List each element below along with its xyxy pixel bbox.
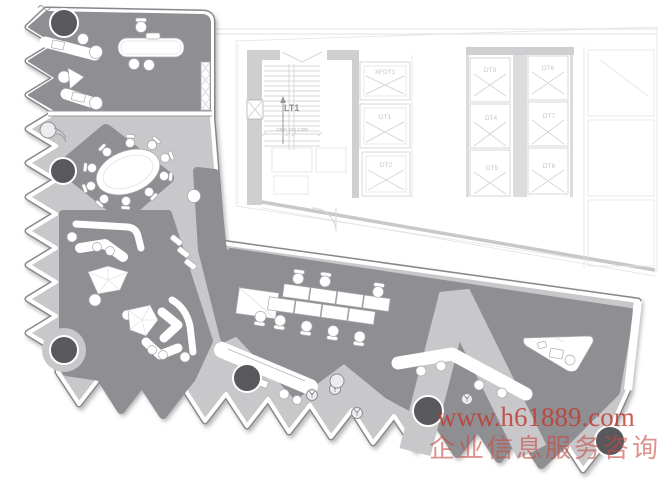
elevator-x	[474, 74, 506, 96]
elevator-bank-b: DT3 DT6 DT4 DT7 DT5 DT8	[466, 47, 574, 197]
elevator-shaft	[528, 56, 568, 100]
faint-diagonal	[600, 60, 648, 96]
cushion-icon	[159, 351, 168, 360]
chair	[121, 196, 131, 210]
faint-room	[588, 200, 654, 266]
elevator-label-dt4: DT4	[485, 115, 498, 122]
column	[50, 336, 78, 364]
stool	[188, 190, 201, 203]
plant-icon	[40, 122, 56, 138]
elevator-x	[368, 170, 404, 190]
core-room	[274, 176, 308, 194]
stool	[293, 396, 302, 405]
cushion-icon	[106, 247, 115, 256]
fitout-plan	[28, 6, 638, 471]
chair	[83, 163, 97, 173]
elevator-shaft	[360, 62, 410, 100]
elevator-x	[532, 72, 564, 94]
faint-room	[588, 120, 654, 196]
elevator-label-dt5: DT5	[486, 165, 499, 172]
stool	[279, 389, 289, 399]
stool	[89, 294, 101, 306]
faint-right-rooms	[584, 46, 654, 268]
elevator-label-dt3: DT3	[484, 67, 497, 74]
side-table	[67, 232, 77, 242]
core-room	[316, 148, 346, 172]
bank-wall	[352, 50, 359, 198]
restroom-basin	[565, 355, 575, 365]
dimension-text: 1300 100 1300	[276, 127, 308, 133]
elevator-x	[366, 76, 404, 94]
elevator-label-dt2: DT2	[380, 162, 393, 169]
stair-arrow-head	[280, 96, 286, 103]
stair-wall	[247, 50, 280, 60]
bank-wall	[570, 55, 573, 197]
chair	[159, 171, 173, 181]
door-leaves	[282, 52, 322, 62]
bank-wall	[466, 55, 469, 197]
elevator-x	[532, 120, 564, 144]
cushion-icon	[148, 346, 157, 355]
elevator-label-xfdt1: XFDT1	[375, 69, 396, 76]
elevator-shaft	[470, 58, 510, 102]
stool	[144, 60, 155, 71]
island-detail	[146, 33, 160, 39]
stair-lt1: LT1 1300 100 1300	[247, 50, 353, 205]
elevator-shaft	[470, 104, 510, 148]
stool	[90, 46, 103, 59]
elevator-bank-a: XFDT1 DT1 DT2	[352, 50, 412, 198]
bank-wall	[513, 55, 527, 197]
chair	[136, 18, 147, 33]
core-room	[272, 148, 312, 172]
plant-icon	[307, 390, 318, 401]
elevator-x	[474, 172, 506, 194]
elevator-label-dt1: DT1	[379, 114, 392, 121]
plant-icon	[352, 408, 363, 419]
elevator-label-dt6: DT6	[542, 65, 555, 72]
elevator-label-dt7: DT7	[543, 113, 556, 120]
stool	[416, 366, 426, 376]
elevator-x	[532, 170, 564, 192]
cushion-icon	[93, 243, 102, 252]
stool	[474, 380, 484, 390]
stair-wall	[327, 50, 353, 60]
elevator-label-dt8: DT8	[543, 163, 556, 170]
elevator-x	[366, 122, 404, 142]
watermark-url: www.h61889.com	[437, 402, 635, 432]
shelf-strip	[201, 62, 210, 110]
chair	[125, 134, 135, 148]
bank-wall	[466, 47, 574, 55]
watermark-caption: 企业信息服务咨询	[429, 434, 661, 463]
floor-plan-image: LT1 1300 100 1300 XFDT1 DT1 DT2	[0, 0, 662, 483]
column	[233, 364, 261, 392]
stair-wall	[247, 50, 262, 205]
stool	[78, 34, 89, 45]
stool	[497, 388, 507, 398]
faint-room	[588, 50, 654, 116]
floor-plan-canvas: LT1 1300 100 1300 XFDT1 DT1 DT2	[0, 0, 662, 483]
column	[50, 158, 76, 184]
side-table	[180, 352, 190, 362]
elevator-x	[474, 122, 506, 146]
column	[50, 9, 78, 37]
plant-ring	[330, 374, 344, 388]
elevator-shaft	[528, 102, 568, 146]
stair-label: LT1	[284, 103, 299, 113]
stool	[90, 97, 103, 110]
restroom-fixture	[549, 348, 563, 359]
stool	[436, 361, 446, 371]
stool	[129, 59, 140, 70]
